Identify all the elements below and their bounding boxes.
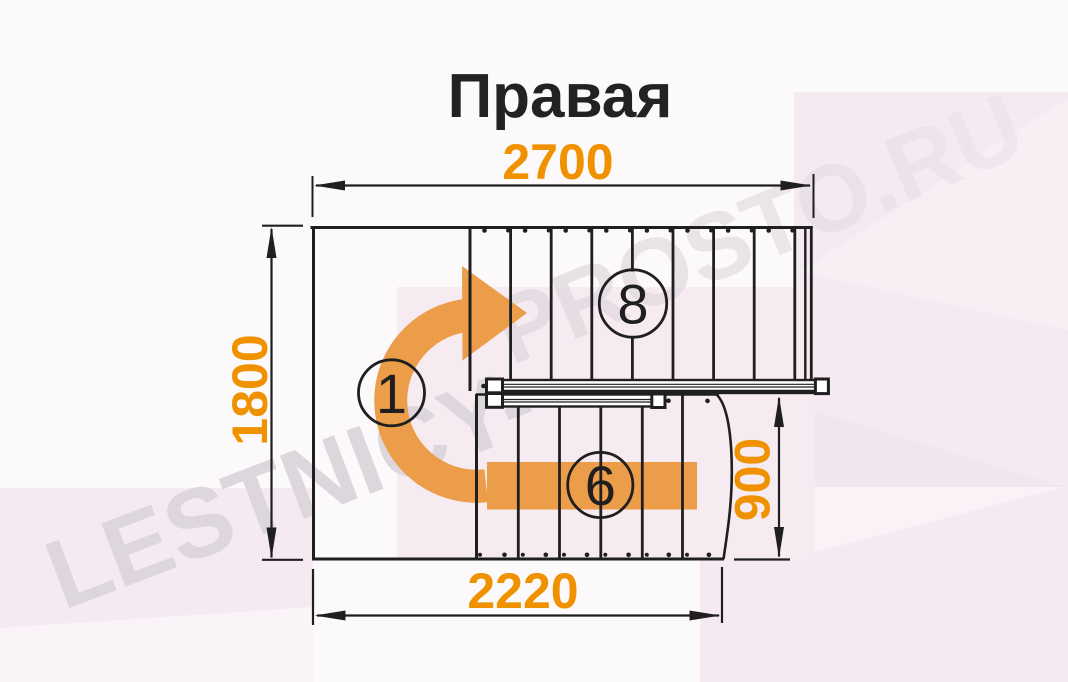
svg-text:1800: 1800 [222,334,278,445]
svg-text:8: 8 [617,273,648,336]
svg-text:2700: 2700 [502,134,613,190]
svg-text:6: 6 [585,454,616,517]
svg-text:2220: 2220 [467,563,578,619]
svg-text:Правая: Правая [448,62,673,131]
svg-text:1: 1 [376,362,407,425]
svg-text:900: 900 [725,438,781,521]
